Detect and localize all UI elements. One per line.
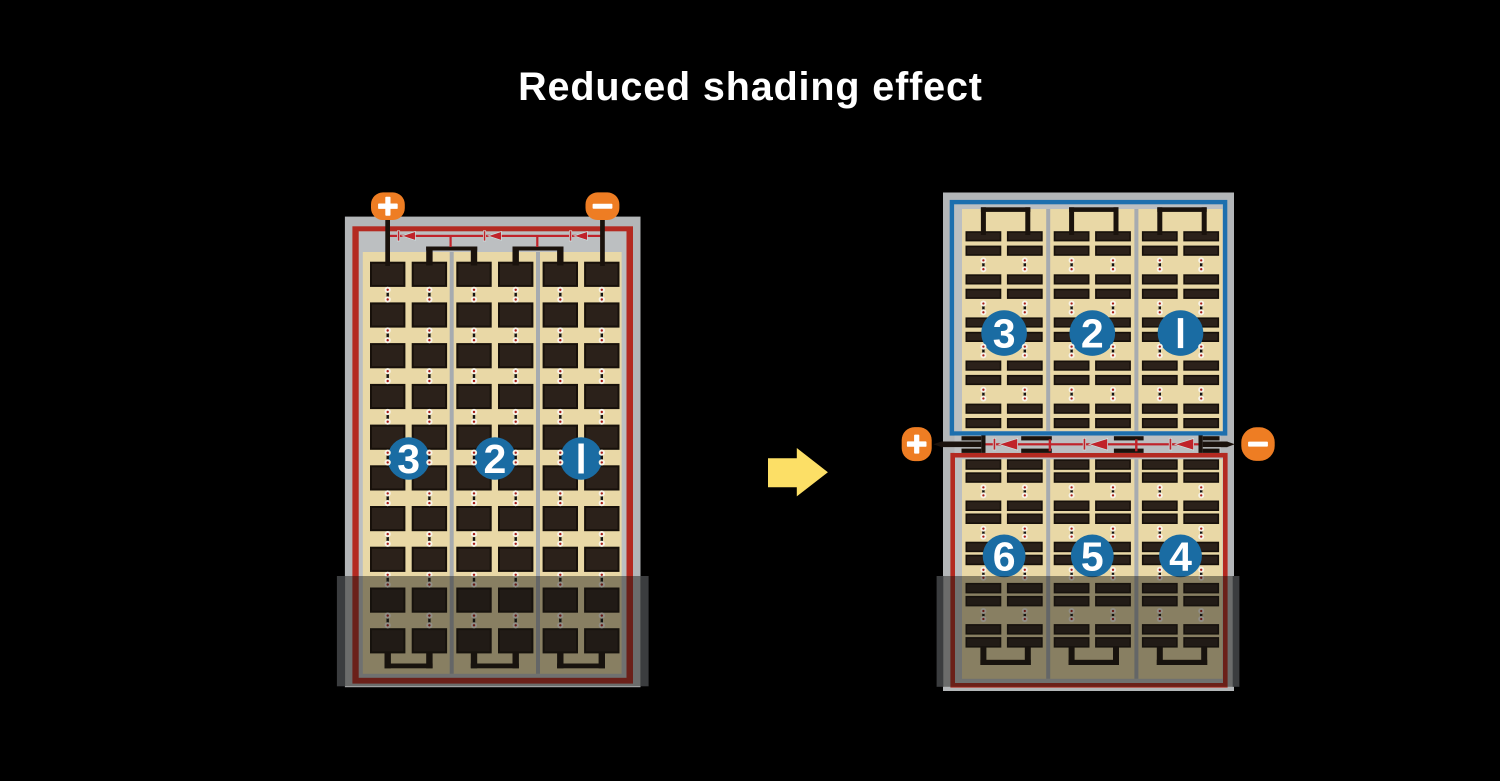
svg-text:5: 5 — [1081, 533, 1104, 579]
svg-text:4: 4 — [1169, 533, 1192, 579]
svg-text:6: 6 — [993, 533, 1016, 579]
svg-text:Reduced shading effect: Reduced shading effect — [518, 65, 983, 109]
svg-text:3: 3 — [397, 436, 420, 482]
svg-text:2: 2 — [483, 436, 506, 482]
svg-text:2: 2 — [1081, 311, 1104, 357]
svg-text:3: 3 — [993, 311, 1016, 357]
